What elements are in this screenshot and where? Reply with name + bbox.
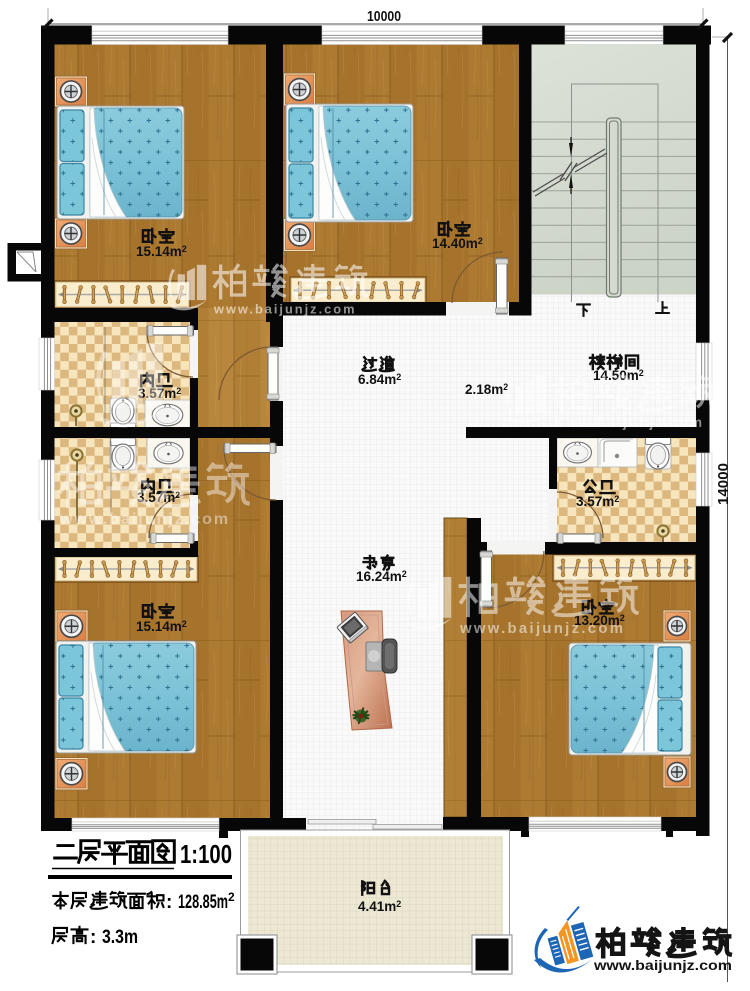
svg-text:www.baijunjz.com: www.baijunjz.com [593,958,732,973]
svg-text:www.baijunjz.com: www.baijunjz.com [213,301,356,316]
svg-text:16.24m2: 16.24m2 [356,569,407,584]
svg-text:2.18m2: 2.18m2 [465,382,508,397]
svg-text:15.14m2: 15.14m2 [136,244,187,259]
svg-text:4.41m2: 4.41m2 [358,899,401,914]
svg-text:6.84m2: 6.84m2 [358,372,401,387]
svg-text:3.57m2: 3.57m2 [576,494,619,509]
svg-text:www.baijunjz.com: www.baijunjz.com [553,415,704,430]
svg-text::3.3m: :3.3m [90,927,138,948]
svg-text:14000: 14000 [716,463,732,505]
svg-text:15.14m2: 15.14m2 [136,619,187,634]
svg-text::128.85m2: :128.85m2 [166,890,235,913]
svg-text:www.baijunjz.com: www.baijunjz.com [59,511,230,528]
svg-text:www.baijunjz.com: www.baijunjz.com [459,621,625,637]
svg-text:1:100: 1:100 [180,839,232,869]
svg-text:10000: 10000 [367,8,401,25]
svg-text:14.40m2: 14.40m2 [432,236,483,251]
